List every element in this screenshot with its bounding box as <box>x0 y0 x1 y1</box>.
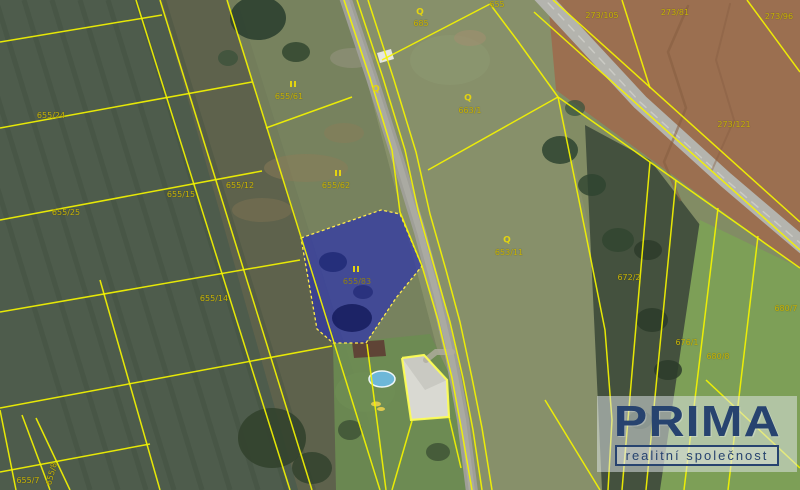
vegetation-blob <box>542 136 578 164</box>
vegetation-blob <box>602 228 634 252</box>
vegetation-blob <box>634 240 662 260</box>
vegetation-blob <box>218 50 238 66</box>
vegetation-blob <box>578 174 606 196</box>
prima-tagline-box: realitní společnost <box>615 445 780 466</box>
vegetation-blob <box>426 443 450 461</box>
vegetation-blob <box>232 198 292 222</box>
vegetation-blob <box>292 452 332 484</box>
vegetation-blob <box>371 402 381 407</box>
cadastral-map-canvas[interactable]: 655/24655/25655/15655/12655/14655/7655/8… <box>0 0 800 490</box>
highlighted-parcel-texture <box>319 252 347 272</box>
highlighted-parcel-texture <box>332 304 372 332</box>
highlighted-parcel-texture <box>353 285 373 299</box>
prima-tagline-text: realitní společnost <box>626 448 769 463</box>
vegetation-blob <box>324 123 364 143</box>
prima-logo-watermark: PRIMA realitní společnost <box>597 396 797 472</box>
vegetation-blob <box>282 42 310 62</box>
vegetation-blob <box>454 30 486 46</box>
vegetation-blob <box>377 407 385 411</box>
prima-logo-text: PRIMA <box>613 402 780 442</box>
